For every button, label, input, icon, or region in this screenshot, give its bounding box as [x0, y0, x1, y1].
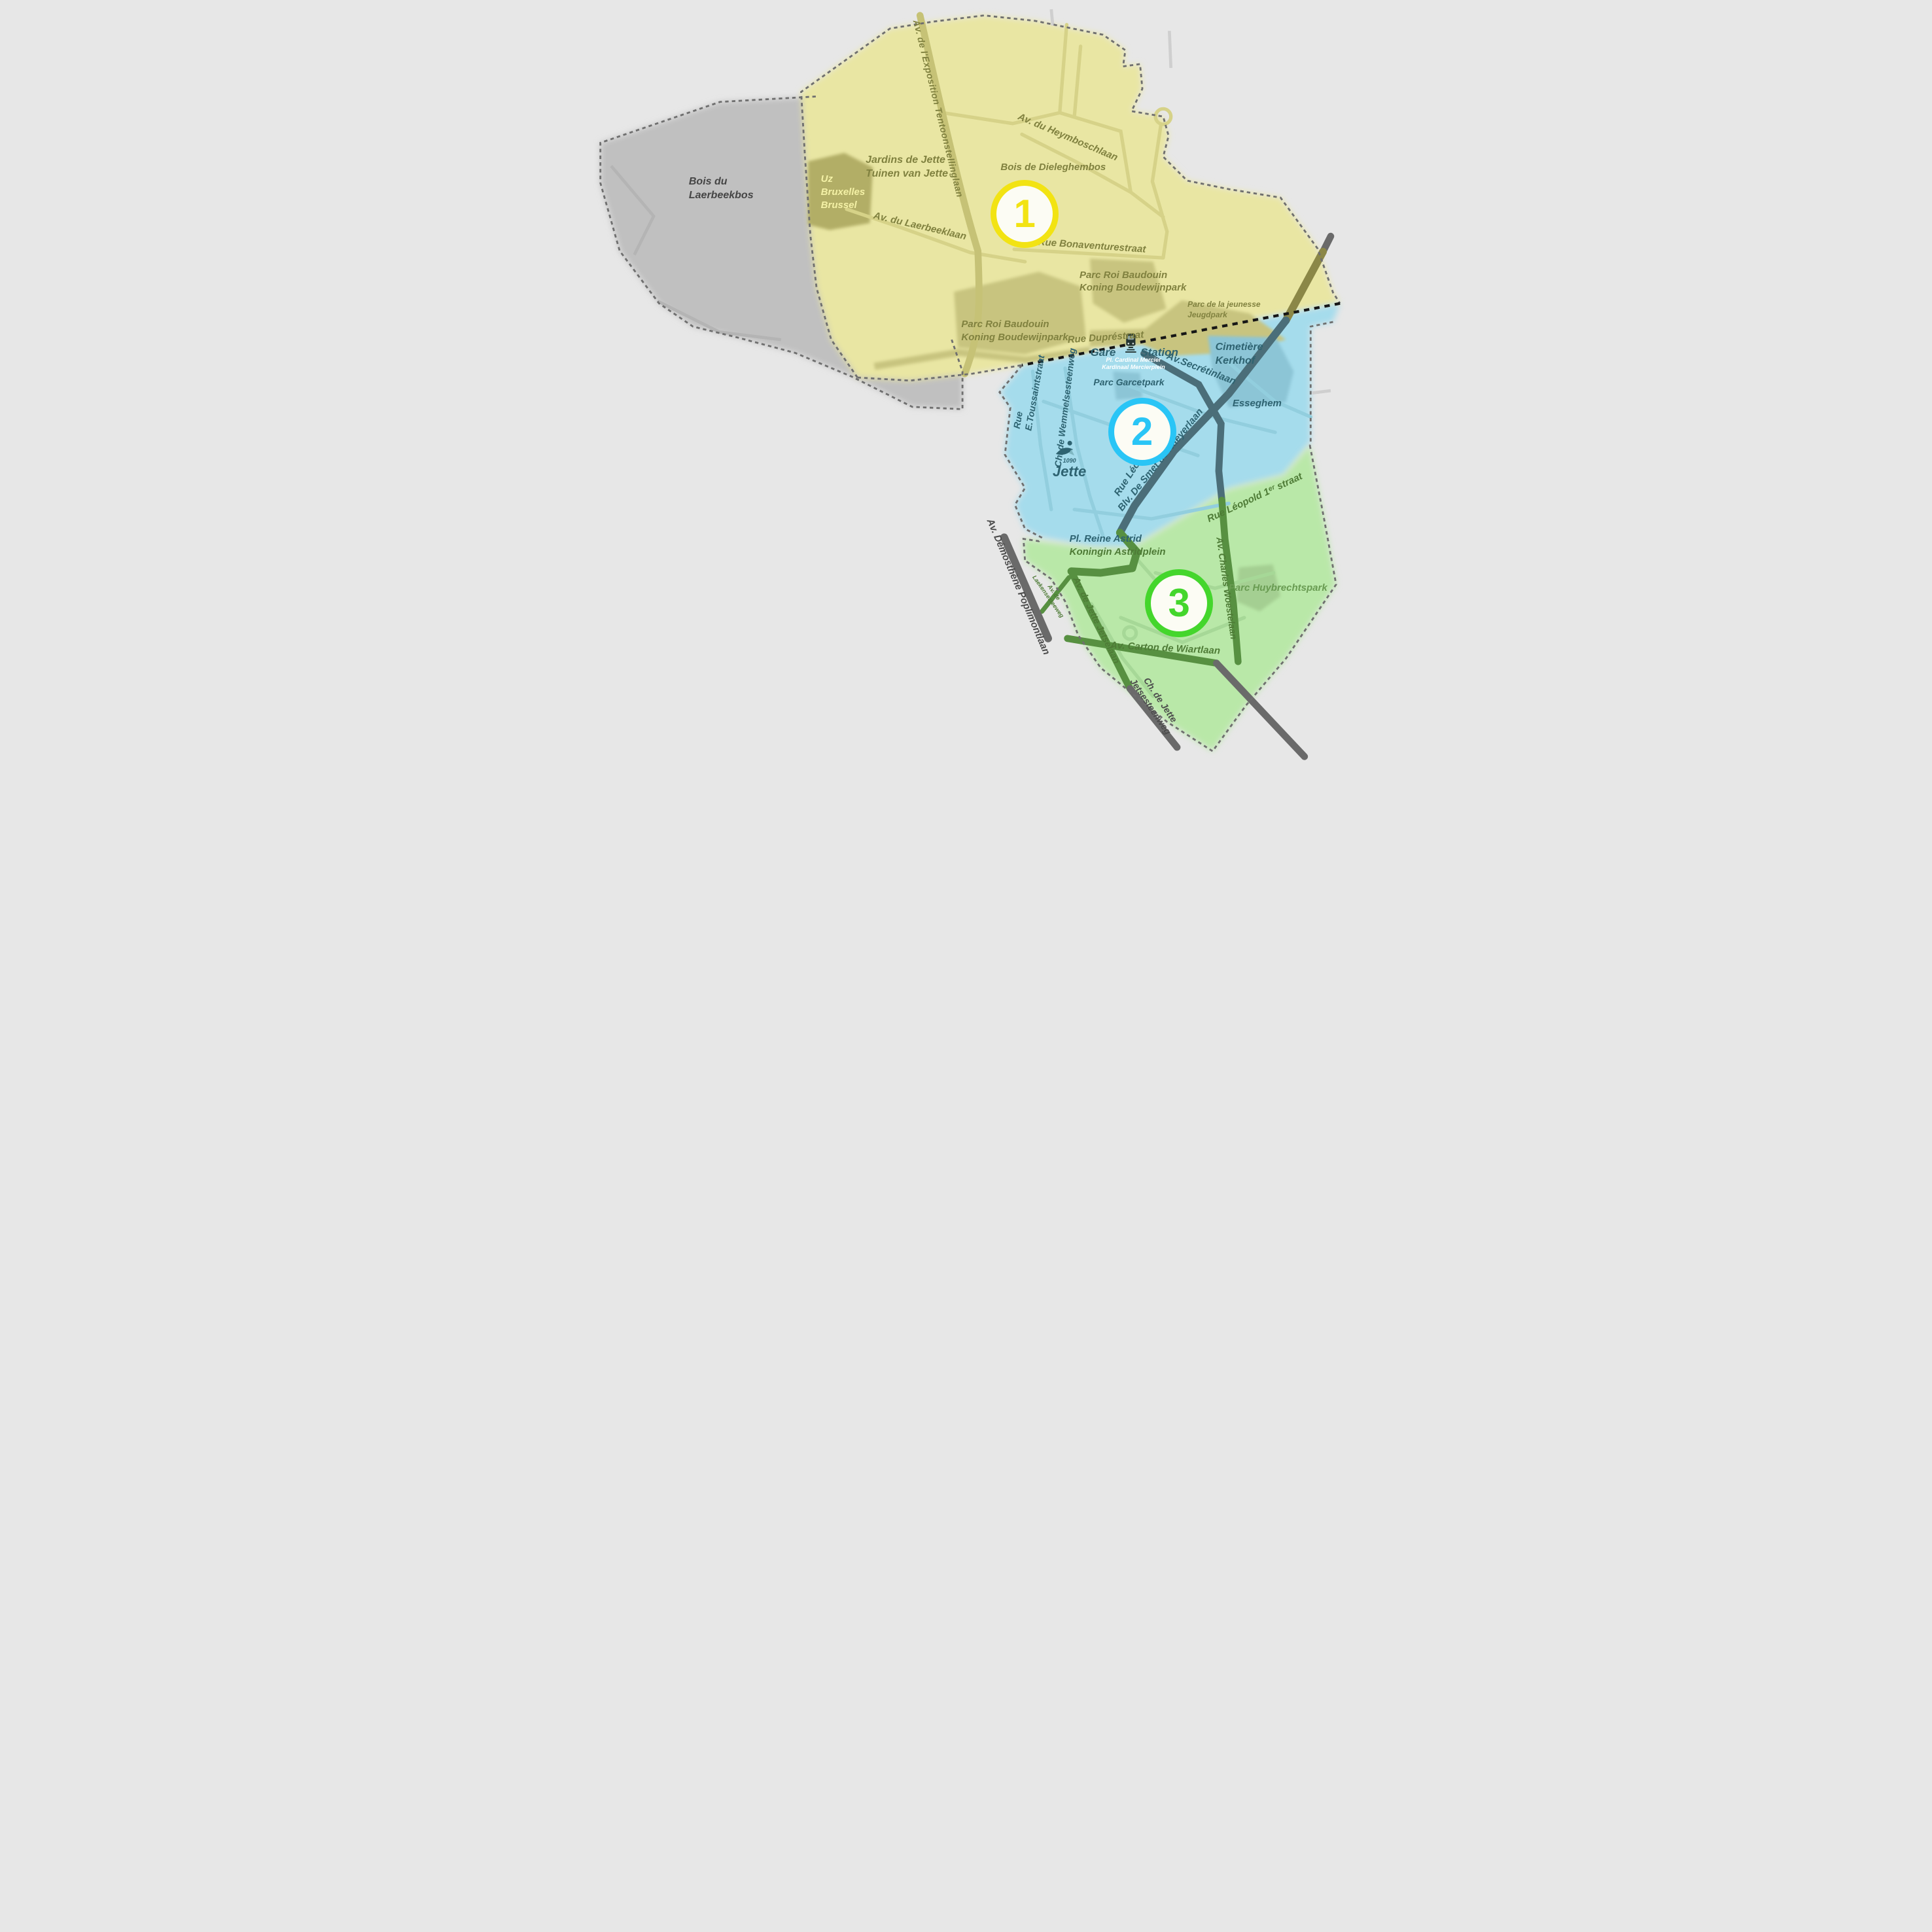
label-parc-roi-baudouin-west: Parc Roi Baudouin Koning Boudewijnpark	[961, 318, 1068, 344]
jette-logo-name: Jette	[1053, 465, 1086, 478]
label-parc-garcetpark: Parc Garcetpark	[1093, 376, 1164, 388]
label-mercierplein: Pl. Cardinal Mercier Kardinaal Mercierpl…	[1102, 357, 1165, 372]
label-esseghem: Esseghem	[1233, 397, 1282, 410]
label-line: Bois du	[689, 175, 754, 188]
label-line: Uz	[821, 173, 866, 186]
label-line: Bruxelles	[821, 186, 866, 199]
label-line: Pl. Cardinal Mercier	[1102, 357, 1165, 364]
label-line: Parc Huybrechtspark	[1229, 582, 1327, 595]
jette-sector-map: Bois du Laerbeekbos Uz Bruxelles Brussel…	[580, 0, 1352, 772]
label-line: Esseghem	[1233, 397, 1282, 410]
label-bois-du-laerbeekbos: Bois du Laerbeekbos	[689, 175, 754, 202]
sector-2-marker: 2	[1108, 398, 1176, 466]
label-line: Kerkhof	[1216, 354, 1263, 368]
label-line: Parc de la jeunesse	[1187, 300, 1260, 310]
label-line: Koning Boudewijnpark	[961, 331, 1068, 344]
label-line: Brussel	[821, 199, 866, 212]
label-line: Pl. Reine Astrid	[1070, 533, 1166, 546]
label-line: Tuinen van Jette	[866, 167, 948, 181]
label-parc-roi-baudouin-east: Parc Roi Baudouin Koning Boudewijnpark	[1080, 269, 1186, 295]
sector-number: 1	[1013, 191, 1035, 236]
jette-municipality-logo: 1090 Jette	[1053, 457, 1086, 478]
label-line: Parc Roi Baudouin	[961, 318, 1068, 331]
sector-number: 2	[1131, 409, 1153, 454]
label-astridplein: Pl. Reine Astrid Koningin Astridplein	[1070, 533, 1166, 559]
map-base-svg	[580, 0, 1352, 772]
label-line: Koning Boudewijnpark	[1080, 281, 1186, 294]
label-line: Laerbeekbos	[689, 188, 754, 202]
sector-3-marker: 3	[1145, 569, 1213, 637]
label-line: Jeugdpark	[1187, 310, 1260, 321]
sector-1-marker: 1	[991, 180, 1059, 248]
label-jardins-de-jette: Jardins de Jette Tuinen van Jette	[866, 153, 948, 181]
label-line: Jardins de Jette	[866, 153, 948, 167]
label-line: Kardinaal Mercierplein	[1102, 364, 1165, 371]
label-dieleghembos: Bois de Dieleghembos	[1000, 161, 1106, 174]
sector-number: 3	[1168, 580, 1189, 625]
label-huybrechtspark: Parc Huybrechtspark	[1229, 582, 1327, 595]
label-uz-bruxelles: Uz Bruxelles Brussel	[821, 173, 866, 211]
label-line: Cimetière	[1216, 340, 1263, 354]
label-jeugdpark: Parc de la jeunesse Jeugdpark	[1187, 300, 1260, 321]
label-line: Parc Roi Baudouin	[1080, 269, 1186, 282]
label-cimetiere-kerkhof: Cimetière Kerkhof	[1216, 340, 1263, 368]
label-line: Koningin Astridplein	[1070, 546, 1166, 559]
label-line: Parc Garcetpark	[1093, 376, 1164, 388]
label-line: Bois de Dieleghembos	[1000, 161, 1106, 174]
